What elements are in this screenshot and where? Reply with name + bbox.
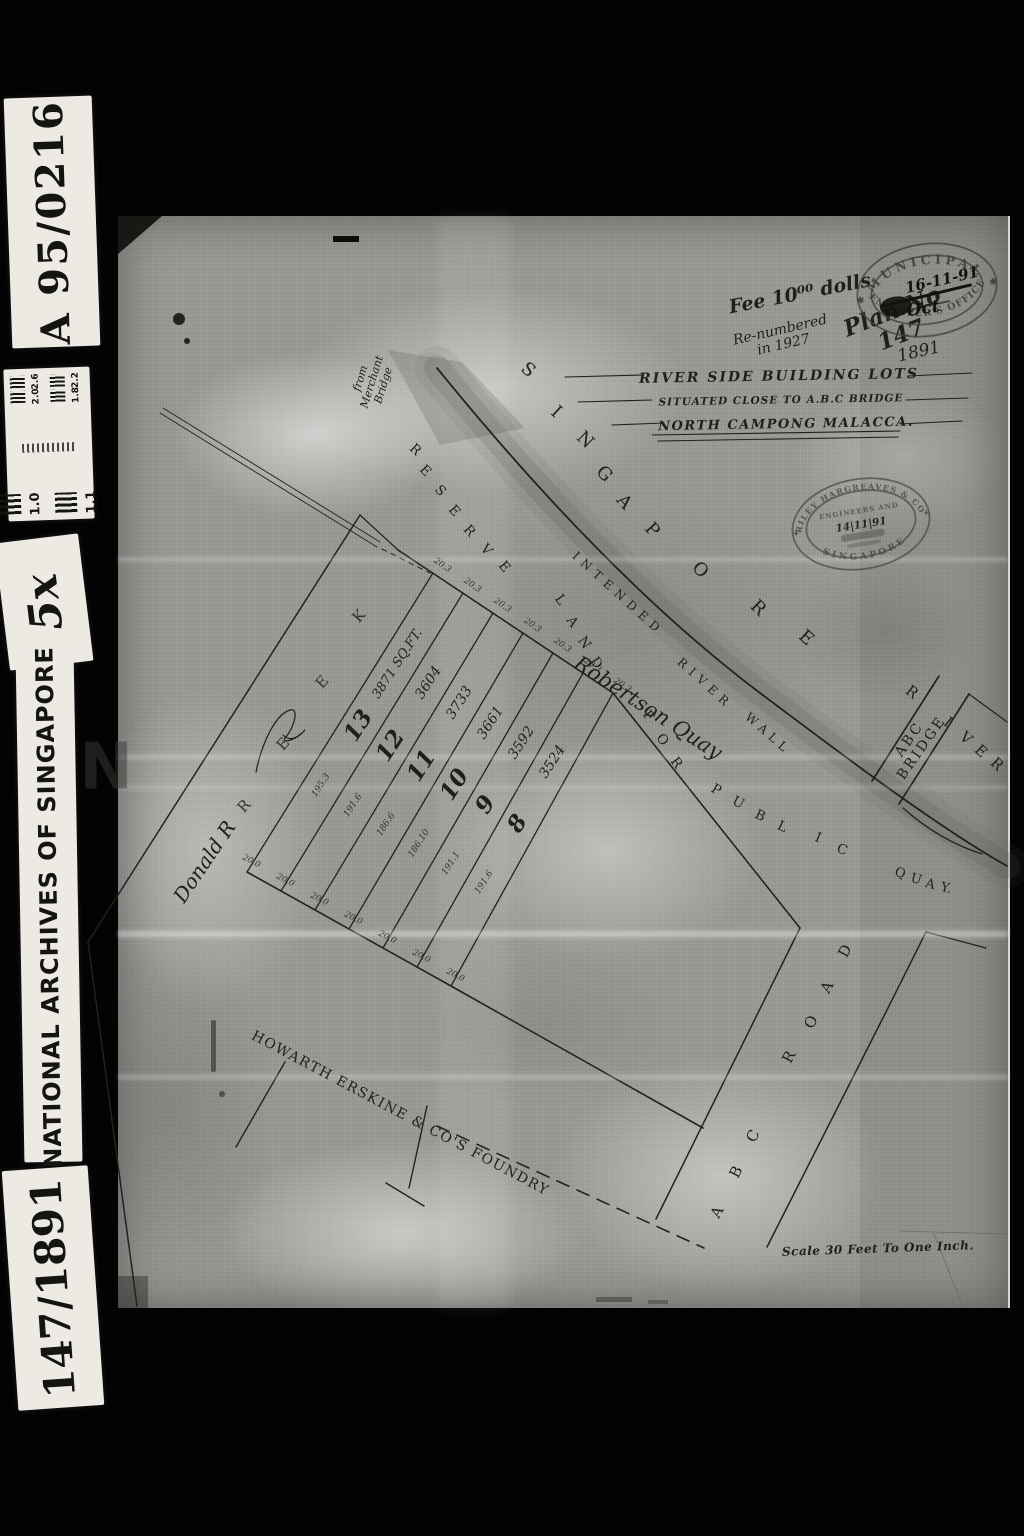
archival-scan-frame: A 95/0216 2.6 2.2 2.0 1.8 1.0 1.1 5x NAT…: [0, 0, 1024, 1536]
lot-area: 3592: [506, 724, 538, 762]
lot-side-dimension: 191.6: [343, 793, 365, 820]
rear-dimension: 20.0: [240, 854, 261, 871]
public-letter: P: [708, 781, 723, 798]
scale-label: Scale 30 Feet To One Inch.: [782, 1239, 974, 1259]
reserve-letter: E: [416, 462, 433, 479]
road-letter: B: [726, 1163, 745, 1180]
singapore-letter: E: [795, 626, 818, 649]
reserve-letter: E: [445, 502, 462, 519]
lot-number: 11: [403, 746, 441, 786]
creek-letter: R: [234, 796, 254, 815]
title-line-1: RIVER SIDE BUILDING LOTS: [639, 367, 919, 387]
frontage-dimension: 20.3: [552, 637, 573, 655]
public-letter: B: [752, 807, 767, 824]
singapore-letter: S: [517, 359, 539, 382]
lot-area: 3661: [475, 704, 507, 742]
rear-dimension: 20.0: [274, 873, 295, 890]
lot-number: 8: [503, 811, 533, 838]
frontage-dimension: 20.3: [462, 577, 483, 595]
river-wall-label: INTENDED: [570, 550, 667, 639]
lot-side-dimension: 195.3: [311, 773, 333, 800]
land-letter: N: [575, 634, 594, 652]
municipal-engineer-stamp: MUNICIPAL ENGINEER'S OFFICE ✱ ✱ 16-11-91…: [846, 230, 1008, 350]
river-letter: R: [987, 754, 1006, 773]
lot-area: 3733: [444, 684, 476, 722]
public-letter: C: [835, 841, 850, 858]
rear-dimension: 20.0: [308, 892, 329, 909]
reserve-letter: R: [460, 522, 478, 539]
lot-side-dimension: 191.1: [441, 851, 463, 878]
title-line-2: SITUATED CLOSE TO A.B.C BRIDGE: [658, 393, 903, 409]
frontage-dimension: 20.3: [492, 597, 513, 615]
frontage-dimension: 20.3: [432, 557, 453, 575]
reserve-letter: V: [477, 542, 494, 559]
quay-letter: A: [924, 877, 937, 893]
for-letter: R: [667, 755, 685, 772]
river-letter: R: [903, 682, 922, 702]
quay-letter: U: [909, 872, 923, 888]
singapore-letter: R: [746, 596, 769, 619]
singapore-letter: A: [612, 491, 635, 514]
road-letter: O: [801, 1013, 821, 1031]
lot-side-dimension: 191.6: [474, 870, 496, 897]
lot-side-dimension: 186.6: [376, 812, 398, 839]
stamp-star-icon: ✱: [856, 296, 865, 307]
public-letter: U: [730, 794, 747, 812]
quay-letter: Q: [893, 866, 907, 882]
road-letter: D: [835, 942, 855, 960]
title-line-3: NORTH CAMPONG MALACCA.: [658, 416, 914, 434]
lot-number: 13: [340, 706, 378, 746]
lot-number: 9: [471, 792, 501, 819]
lot-area: 3524: [537, 743, 569, 781]
public-letter: L: [775, 819, 789, 836]
river-letter: V: [957, 728, 976, 747]
singapore-letter: O: [688, 558, 712, 582]
lot-side-dimension: 186.10: [407, 828, 432, 860]
renumbered-note: Re-numbered in 1927: [732, 312, 832, 363]
stamp-star-icon: ✦: [922, 507, 930, 518]
quay-letter: Y.: [939, 881, 953, 897]
land-letter: L: [551, 592, 568, 608]
public-letter: I: [813, 830, 823, 846]
lot-number: 12: [372, 726, 410, 766]
creek-letter: E: [273, 735, 292, 754]
reserve-letter: S: [432, 483, 449, 500]
creek-letter: K: [349, 606, 369, 625]
river-letter: E: [971, 741, 990, 760]
owner-signature: Donald R: [170, 817, 240, 907]
reserve-letter: R: [406, 441, 423, 459]
plan-lettering-layer: RIVER SIDE BUILDING LOTSSITUATED CLOSE T…: [0, 0, 1024, 1536]
river-wall-label: RIVER: [675, 656, 736, 713]
lot-area: 3604: [413, 664, 445, 702]
foundry-label: HOWARTH ERSKINE & CO'S FOUNDRY: [249, 1029, 552, 1200]
river-wall-label: WALL: [742, 711, 793, 758]
singapore-letter: I: [547, 402, 565, 421]
lot-number: 10: [436, 765, 474, 805]
creek-letter: E: [312, 673, 331, 692]
road-letter: A: [817, 978, 836, 995]
road-letter: R: [779, 1048, 799, 1066]
film-watermark: N: [79, 733, 133, 802]
frontage-dimension: 20.3: [522, 617, 543, 635]
rear-dimension: 20.0: [342, 911, 363, 928]
merchant-bridge-note: from Merchant Bridge: [347, 351, 397, 413]
singapore-letter: P: [641, 519, 664, 541]
stamp-ring-bottom-text: SINGAPORE: [820, 534, 911, 569]
road-letter: A: [707, 1203, 726, 1220]
singapore-letter: N: [573, 428, 598, 453]
robertson-quay-note: Robertson Quay: [570, 652, 726, 764]
land-letter: A: [563, 614, 581, 630]
rear-dimension: 20.0: [410, 949, 431, 966]
singapore-letter: G: [592, 462, 616, 486]
bridge-label: ABC BRIDGE: [873, 691, 960, 797]
road-letter: C: [743, 1127, 763, 1145]
rear-dimension: 20.0: [444, 968, 465, 985]
reserve-letter: E: [495, 559, 513, 576]
rear-dimension: 20.0: [376, 930, 397, 947]
